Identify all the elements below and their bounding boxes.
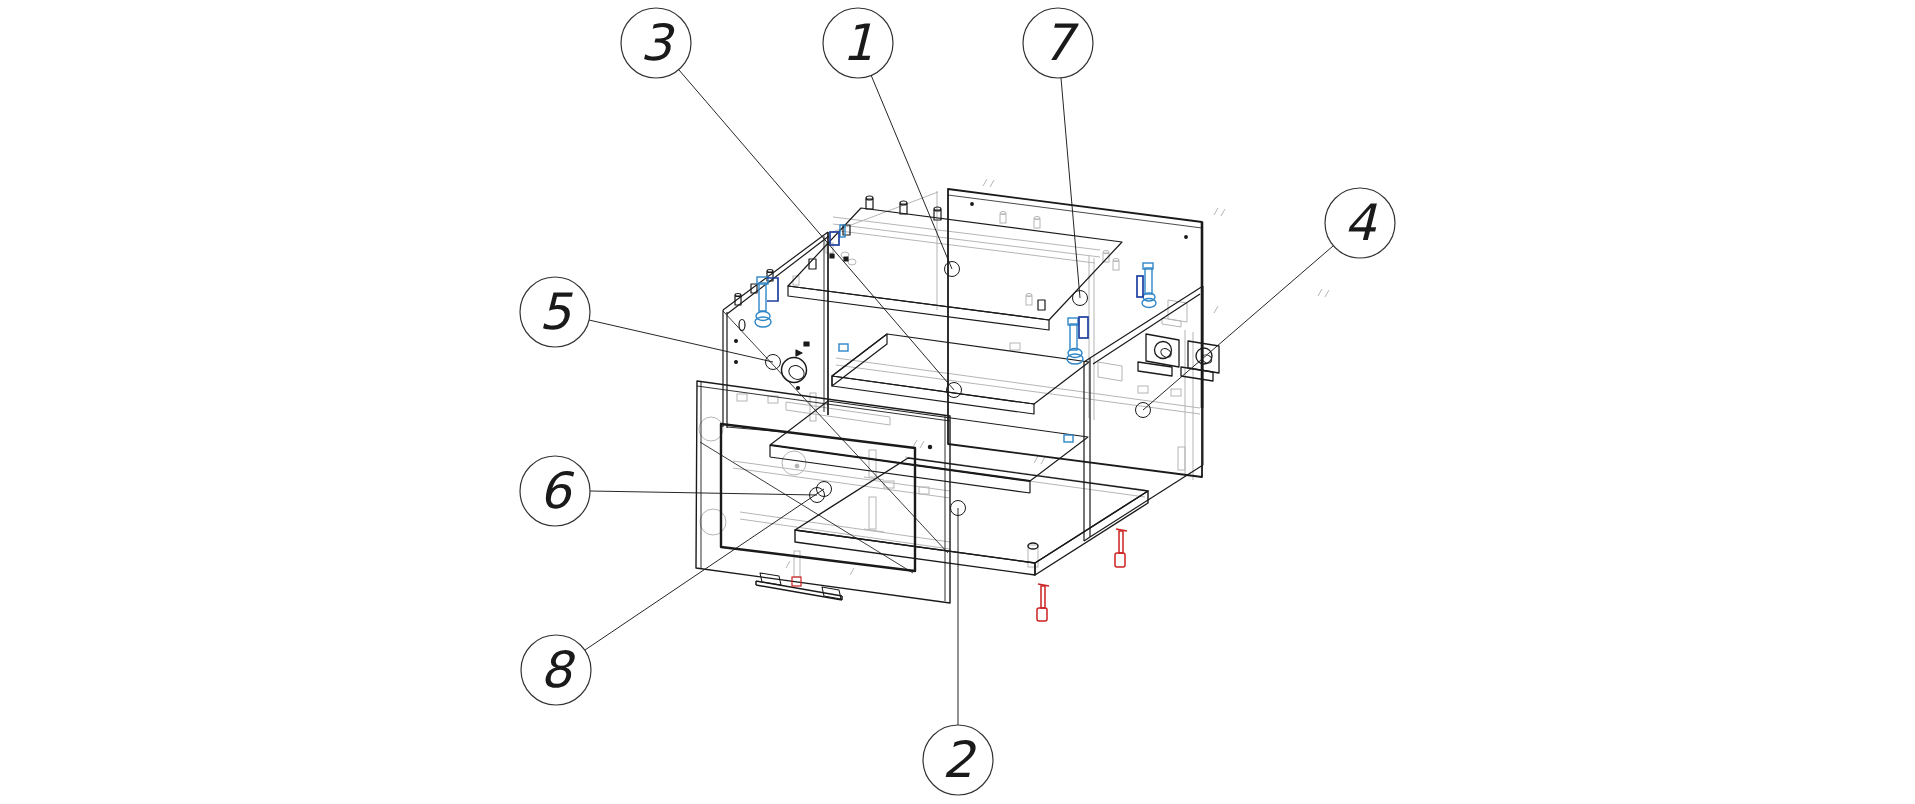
callout-endpoint-4	[1136, 403, 1151, 418]
screw-icon	[1142, 263, 1156, 308]
callout-number-4: 4	[1344, 194, 1377, 252]
middle-shelf	[832, 334, 1089, 414]
callout-endpoint-1	[945, 262, 960, 277]
clip-icon	[1064, 435, 1073, 442]
callout-number-5: 5	[539, 283, 573, 341]
callout-endpoint-7	[1073, 291, 1088, 306]
screw-icon	[1115, 529, 1127, 567]
callout-endpoint-2	[951, 501, 966, 516]
callout-number-2: 2	[942, 731, 977, 789]
callout-endpoint-5	[766, 355, 781, 370]
red-screws	[792, 529, 1127, 621]
callout-endpoint-3	[947, 383, 962, 398]
bottom-panel	[795, 458, 1148, 575]
exploded-assembly-drawing: 13745682	[0, 0, 1915, 804]
callout-leader-4	[1143, 246, 1333, 410]
back-panel	[948, 189, 1202, 477]
callout-number-3: 3	[640, 14, 675, 72]
bracket-left	[1138, 334, 1179, 376]
callouts-layer: 13745682	[520, 8, 1395, 795]
callout-number-8: 8	[540, 641, 576, 699]
drawing-page: 13745682	[0, 0, 1915, 804]
callout-number-6: 6	[539, 462, 575, 520]
screw-icon	[1067, 318, 1083, 364]
clip-icon	[1079, 317, 1088, 338]
clip-icon	[1137, 276, 1143, 297]
front-door	[696, 311, 950, 603]
knob	[782, 350, 807, 390]
clip-icon	[839, 344, 848, 351]
callout-leader-8	[585, 489, 824, 650]
screw-icon	[755, 277, 771, 327]
callout-leader-3	[679, 70, 954, 390]
screw-icon	[1037, 584, 1049, 621]
callout-number-7: 7	[1042, 14, 1079, 72]
callout-leader-7	[1061, 78, 1080, 298]
callout-number-1: 1	[842, 14, 874, 72]
callout-endpoint-8	[817, 482, 832, 497]
